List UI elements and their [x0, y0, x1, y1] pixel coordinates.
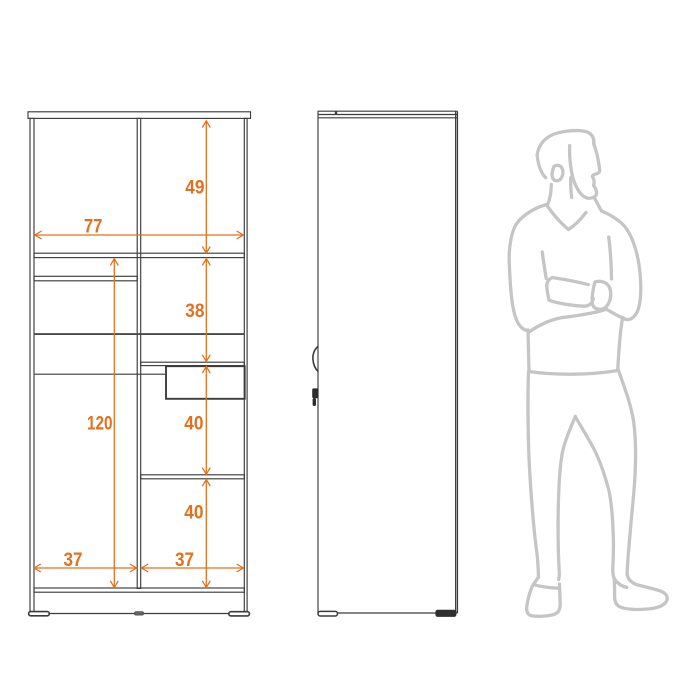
svg-text:77: 77: [84, 215, 103, 237]
svg-text:37: 37: [64, 549, 83, 571]
svg-text:49: 49: [185, 176, 204, 198]
svg-text:40: 40: [184, 413, 203, 435]
svg-text:38: 38: [185, 300, 204, 322]
svg-text:37: 37: [175, 549, 194, 571]
svg-text:120: 120: [87, 413, 113, 435]
svg-text:40: 40: [184, 502, 203, 524]
